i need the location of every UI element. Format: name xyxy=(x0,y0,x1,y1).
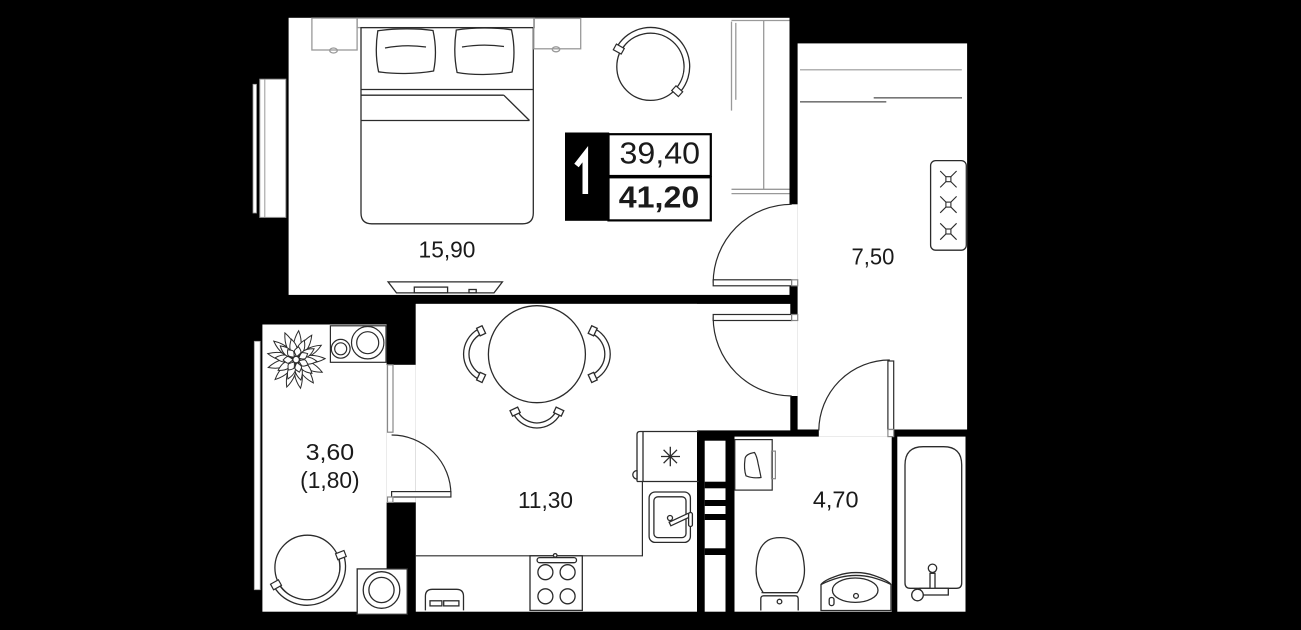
svg-text:3,60: 3,60 xyxy=(306,439,355,465)
svg-text:7,50: 7,50 xyxy=(852,244,895,270)
svg-text:15,90: 15,90 xyxy=(419,237,476,263)
svg-text:(1,80): (1,80) xyxy=(300,467,359,493)
svg-text:11,30: 11,30 xyxy=(518,487,573,513)
svg-text:39,40: 39,40 xyxy=(620,135,701,170)
svg-text:41,20: 41,20 xyxy=(619,181,700,215)
svg-text:4,70: 4,70 xyxy=(813,487,859,513)
